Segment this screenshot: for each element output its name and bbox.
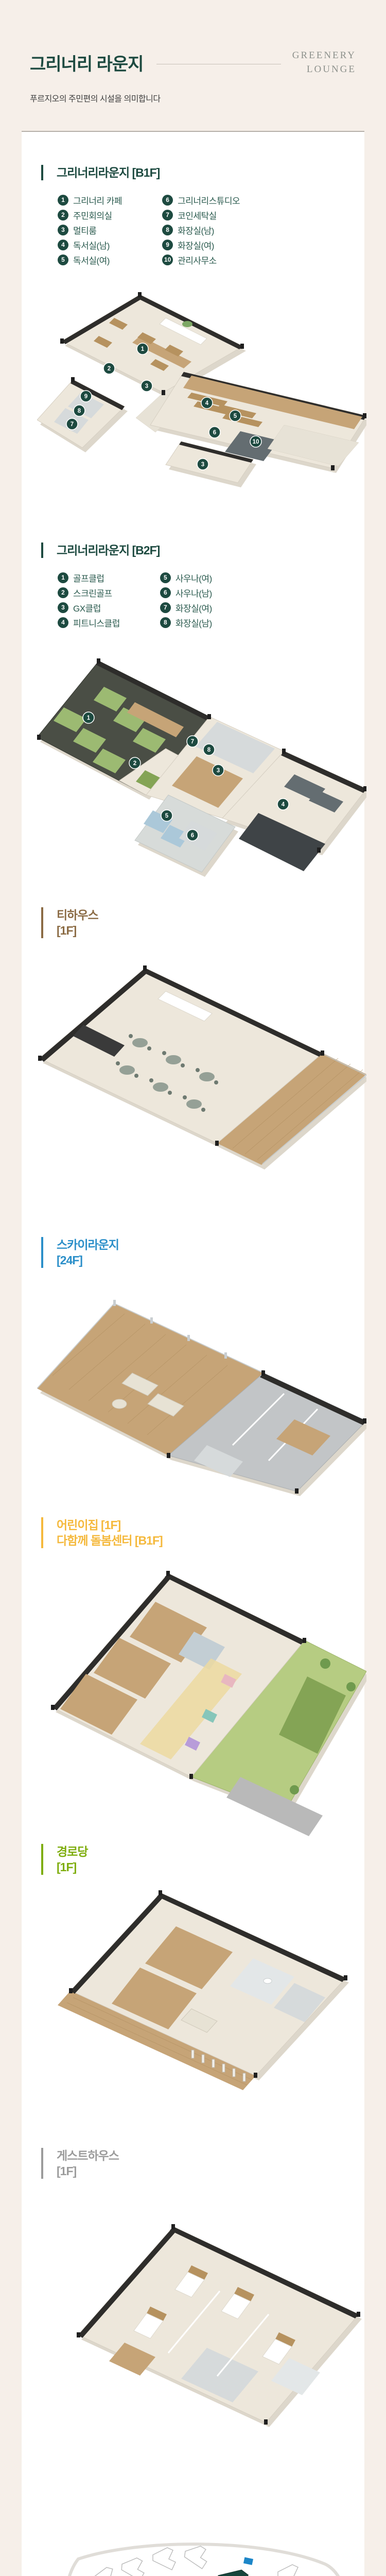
section-accent-bar	[41, 543, 43, 558]
legend-label: 관리사무소	[178, 253, 217, 266]
legend-item: 3 멀티룸	[58, 224, 122, 236]
section-accent-bar	[41, 2148, 43, 2179]
plan-marker-number: 3	[145, 383, 148, 389]
legend-number-badge: 9	[162, 240, 173, 250]
guesthouse-floor-plan	[37, 2188, 366, 2507]
legend-item: 8 화장실(남)	[162, 224, 240, 236]
plan-marker-number: 1	[87, 715, 91, 721]
plan-marker-number: 3	[201, 462, 204, 468]
legend-item: 5 독서실(여)	[58, 253, 122, 266]
section-title-senior-center: 경로당	[57, 1844, 87, 1859]
legend-number-badge: 6	[162, 195, 173, 206]
b2f-legend-column-1: 1 골프클럽 2 스크린골프 3 GX클럽 4 피트니스클럽	[58, 571, 120, 631]
page-header: 그리너리 라운지 GREENERY LOUNGE 푸르지오의 주민편의 시설을 …	[30, 49, 356, 104]
legend-label: 사우나(여)	[176, 571, 212, 584]
section-accent-bar	[41, 165, 43, 180]
plan-marker-number: 5	[165, 813, 169, 819]
legend-number-badge: 7	[160, 602, 171, 613]
b2f-legend: 1 골프클럽 2 스크린골프 3 GX클럽 4 피트니스클럽 5 사우나(여) …	[58, 571, 349, 631]
legend-number-badge: 1	[58, 195, 68, 206]
section-header-daycare: 어린이집 [1F] 다함께 돌봄센터 [B1F]	[41, 1517, 349, 1548]
section-title-greenery-b1f: 그리너리라운지 [B1F]	[57, 165, 160, 180]
legend-number-badge: 3	[58, 602, 68, 613]
legend-label: 화장실(여)	[176, 601, 212, 614]
plan-marker-number: 8	[207, 747, 211, 753]
legend-number-badge: 5	[160, 572, 171, 583]
section-accent-bar	[41, 1517, 43, 1548]
section-title-daycare: 어린이집 [1F]	[57, 1517, 163, 1533]
section-accent-bar	[41, 1844, 43, 1875]
legend-label: 주민회의실	[73, 209, 112, 222]
section-header-sky-lounge: 스카이라운지 [24F]	[41, 1237, 349, 1268]
plan-marker-number: 3	[217, 768, 220, 774]
legend-item: 6 그리너리스튜디오	[162, 194, 240, 206]
section-floor-guesthouse: [1F]	[57, 2163, 119, 2179]
legend-label: 그리너리 카페	[73, 194, 122, 207]
legend-item: 4 독서실(남)	[58, 239, 122, 251]
legend-item: 4 피트니스클럽	[58, 616, 120, 629]
legend-item: 10 관리사무소	[162, 253, 240, 266]
legend-label: 사우나(남)	[176, 586, 212, 599]
b1f-floor-plan: 123987456103	[37, 287, 366, 493]
section-floor-sky-lounge: [24F]	[57, 1252, 119, 1268]
legend-item: 2 스크린골프	[58, 586, 120, 599]
legend-number-badge: 6	[160, 587, 171, 598]
legend-item: 7 화장실(여)	[160, 601, 212, 614]
legend-item: 2 주민회의실	[58, 209, 122, 221]
plan-marker-number: 4	[205, 400, 209, 406]
legend-number-badge: 3	[58, 225, 68, 235]
site-map-highlight-greenery-lounge	[214, 2566, 253, 2576]
legend-number-badge: 8	[162, 225, 173, 235]
page-title-english-line1: GREENERY	[292, 49, 356, 63]
legend-number-badge: 10	[162, 255, 173, 265]
senior-center-floor-plan	[37, 1880, 366, 2097]
plan-marker-number: 8	[78, 408, 81, 414]
b1f-legend: 1 그리너리 카페 2 주민회의실 3 멀티룸 4 독서실(남) 5 독서실(여…	[58, 194, 349, 268]
legend-number-badge: 7	[162, 210, 173, 221]
teahouse-floor-plan	[37, 947, 366, 1215]
section-title-greenery-b2f: 그리너리라운지 [B2F]	[57, 543, 160, 558]
plan-marker-number: 7	[191, 739, 194, 745]
legend-label: 골프클럽	[73, 571, 104, 584]
legend-number-badge: 8	[160, 617, 171, 628]
section-accent-bar	[41, 1237, 43, 1268]
section-accent-bar	[41, 907, 43, 938]
section-header-guesthouse: 게스트하우스 [1F]	[41, 2148, 349, 2179]
legend-number-badge: 4	[58, 617, 68, 628]
section-title-sky-lounge: 스카이라운지	[57, 1237, 119, 1252]
legend-number-badge: 2	[58, 587, 68, 598]
section-title-guesthouse: 게스트하우스	[57, 2148, 119, 2163]
section-header-greenery-b1f: 그리너리라운지 [B1F]	[41, 165, 349, 180]
plan-marker-number: 5	[234, 413, 237, 419]
content-card: 그리너리라운지 [B1F] 1 그리너리 카페 2 주민회의실 3 멀티룸 4 …	[22, 131, 364, 2576]
legend-number-badge: 1	[58, 572, 68, 583]
sky-lounge-floor-plan	[37, 1275, 366, 1505]
legend-item: 1 골프클럽	[58, 571, 120, 584]
legend-number-badge: 4	[58, 240, 68, 250]
plan-marker-number: 2	[133, 760, 136, 767]
legend-label: 멀티룸	[73, 224, 96, 236]
b2f-floor-plan: 12783456	[37, 640, 366, 877]
site-map-highlight-sky-lounge	[243, 2557, 253, 2565]
legend-item: 7 코인세탁실	[162, 209, 240, 221]
legend-label: GX클럽	[73, 601, 101, 614]
page-title-english-line2: LOUNGE	[292, 63, 356, 77]
section-header-greenery-b2f: 그리너리라운지 [B2F]	[41, 543, 349, 558]
section-floor-teahouse: [1F]	[57, 923, 98, 938]
legend-label: 화장실(여)	[178, 239, 214, 251]
legend-item: 8 화장실(남)	[160, 616, 212, 629]
legend-number-badge: 2	[58, 210, 68, 221]
plan-marker-number: 2	[108, 366, 111, 372]
legend-label: 스크린골프	[73, 586, 112, 599]
plan-marker-number: 1	[141, 346, 145, 352]
plan-marker-number: 4	[282, 802, 285, 808]
b1f-legend-column-2: 6 그리너리스튜디오 7 코인세탁실 8 화장실(남) 9 화장실(여) 10 …	[162, 194, 240, 268]
legend-item: 6 사우나(남)	[160, 586, 212, 599]
plan-marker-number: 9	[84, 394, 87, 400]
daycare-floor-plan	[37, 1555, 366, 1840]
title-divider-line	[156, 64, 280, 64]
section-floor-senior-center: [1F]	[57, 1859, 87, 1875]
section-title-care-center: 다함께 돌봄센터 [B1F]	[57, 1533, 163, 1548]
legend-label: 화장실(남)	[176, 616, 212, 629]
b2f-legend-column-2: 5 사우나(여) 6 사우나(남) 7 화장실(여) 8 화장실(남)	[160, 571, 212, 631]
plan-marker-number: 7	[71, 421, 74, 428]
page-title: 그리너리 라운지	[30, 50, 143, 75]
legend-label: 화장실(남)	[178, 224, 214, 236]
plan-marker-number: 6	[191, 833, 194, 839]
site-map	[37, 2528, 366, 2576]
legend-label: 피트니스클럽	[73, 616, 120, 629]
page-title-english: GREENERY LOUNGE	[292, 49, 356, 76]
legend-label: 그리너리스튜디오	[178, 194, 240, 207]
plan-marker-number: 6	[213, 430, 216, 436]
section-header-teahouse: 티하우스 [1F]	[41, 907, 349, 938]
legend-item: 9 화장실(여)	[162, 239, 240, 251]
section-title-teahouse: 티하우스	[57, 907, 98, 923]
legend-label: 코인세탁실	[178, 209, 217, 222]
legend-label: 독서실(남)	[73, 239, 110, 251]
page-subtitle: 푸르지오의 주민편의 시설을 의미합니다	[30, 92, 356, 104]
legend-item: 3 GX클럽	[58, 601, 120, 614]
b1f-legend-column-1: 1 그리너리 카페 2 주민회의실 3 멀티룸 4 독서실(남) 5 독서실(여…	[58, 194, 122, 268]
legend-number-badge: 5	[58, 255, 68, 265]
section-header-senior-center: 경로당 [1F]	[41, 1844, 349, 1875]
plan-marker-number: 10	[253, 439, 259, 445]
legend-item: 5 사우나(여)	[160, 571, 212, 584]
legend-label: 독서실(여)	[73, 253, 110, 266]
legend-item: 1 그리너리 카페	[58, 194, 122, 206]
